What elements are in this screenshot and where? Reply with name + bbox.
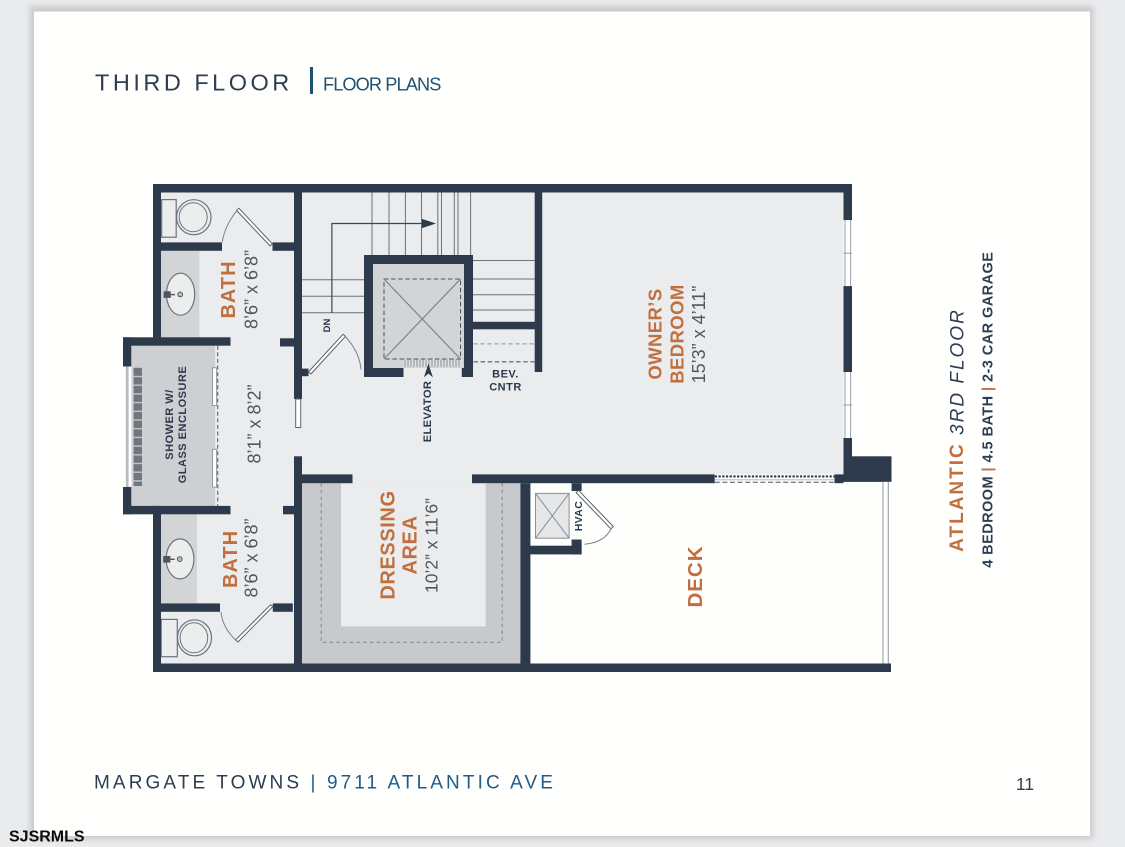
svg-text:THIRD FLOOR: THIRD FLOOR — [95, 70, 293, 96]
svg-text:DRESSING: DRESSING — [378, 490, 400, 599]
svg-text:AREA: AREA — [400, 515, 422, 574]
svg-text:CNTR: CNTR — [489, 382, 522, 394]
svg-text:11: 11 — [1016, 774, 1034, 794]
svg-text:BEV.: BEV. — [492, 369, 519, 381]
svg-text:8’6” x 6’8”: 8’6” x 6’8” — [242, 250, 262, 329]
svg-text:8’6” x 6’8”: 8’6” x 6’8” — [242, 518, 262, 597]
svg-text:ELEVATOR: ELEVATOR — [422, 381, 434, 442]
svg-text:HVAC: HVAC — [573, 501, 585, 532]
svg-text:FLOOR PLANS: FLOOR PLANS — [323, 75, 441, 95]
svg-text:BATH: BATH — [220, 530, 242, 588]
svg-text:OWNER’S: OWNER’S — [645, 288, 666, 379]
svg-text:BATH: BATH — [218, 260, 240, 318]
svg-text:BEDROOM: BEDROOM — [667, 284, 688, 383]
svg-text:DECK: DECK — [684, 545, 707, 607]
svg-text:ATLANTIC 3RD FLOOR: ATLANTIC 3RD FLOOR — [947, 308, 968, 552]
svg-text:SJSRMLS: SJSRMLS — [9, 829, 85, 846]
svg-text:GLASS ENCLOSURE: GLASS ENCLOSURE — [177, 366, 189, 484]
svg-text:15’3” x 4’11”: 15’3” x 4’11” — [689, 286, 709, 384]
svg-text:4 BEDROOM | 4.5 BATH | 2-3 CAR: 4 BEDROOM | 4.5 BATH | 2-3 CAR GARAGE — [981, 252, 997, 568]
svg-text:MARGATE TOWNS | 9711 ATLANTIC: MARGATE TOWNS | 9711 ATLANTIC AVE — [94, 773, 556, 794]
svg-text:8’1” x 8’2”: 8’1” x 8’2” — [245, 384, 265, 463]
svg-text:10’2” x 11’6”: 10’2” x 11’6” — [422, 498, 442, 593]
svg-text:DN: DN — [322, 319, 333, 333]
svg-text:SHOWER W/: SHOWER W/ — [164, 389, 176, 460]
